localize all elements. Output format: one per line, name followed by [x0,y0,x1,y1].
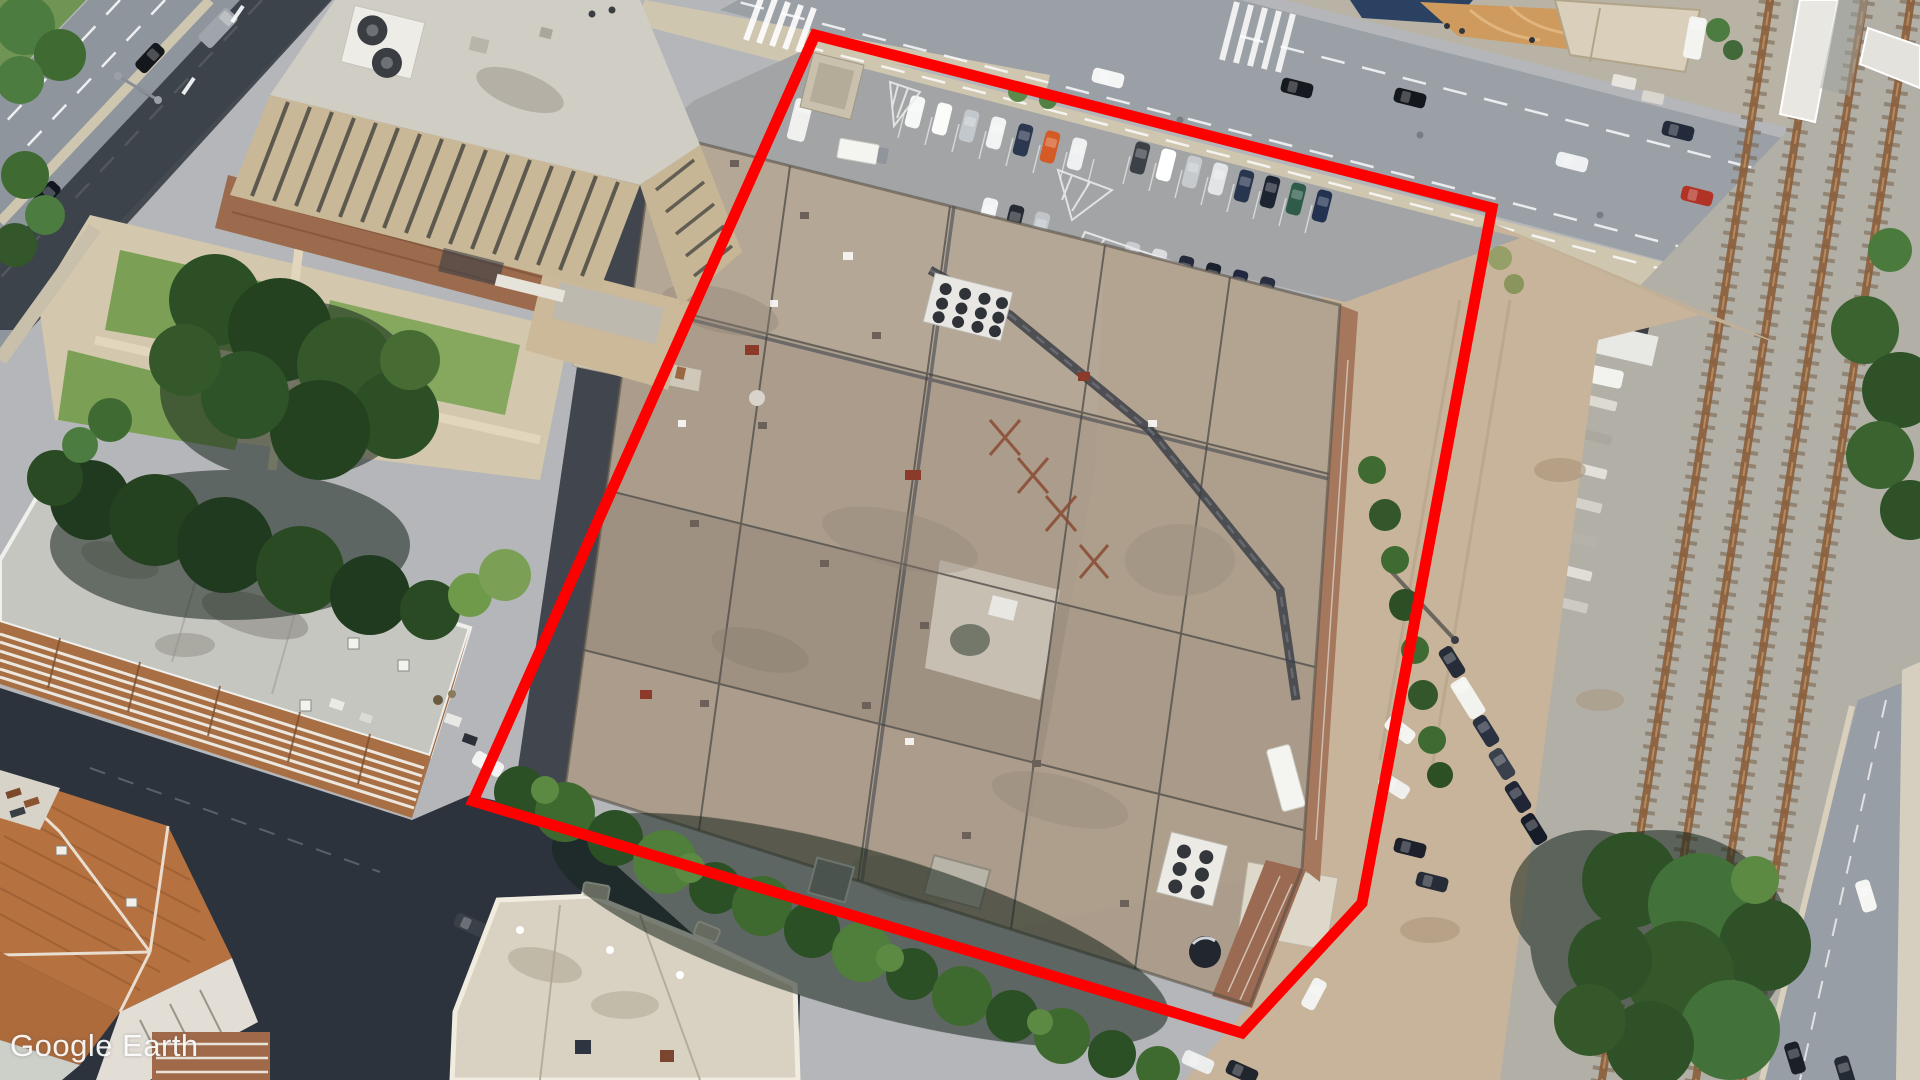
roof-tank [1189,936,1221,968]
dome-vent [749,390,765,406]
satellite-map[interactable] [0,0,1920,1080]
google-earth-viewport[interactable]: Google Earth [0,0,1920,1080]
tree-canopy [1554,832,1811,1080]
google-earth-watermark: Google Earth [10,1028,199,1064]
